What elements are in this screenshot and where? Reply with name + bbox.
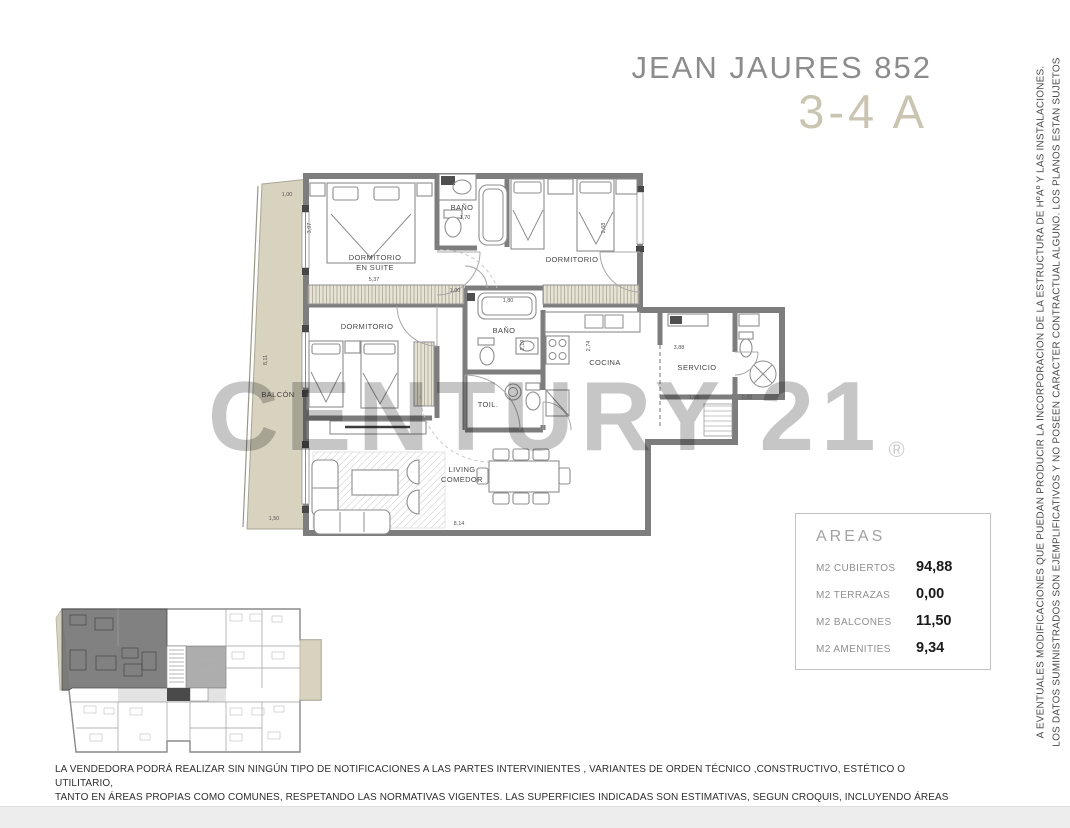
- svg-text:3,88: 3,88: [674, 345, 685, 351]
- room-label-dormitorio-3: DORMITORIO: [341, 322, 394, 331]
- areas-row-terrazas: M2 TERRAZAS 0,00: [816, 586, 990, 602]
- brochure-page: BALCÓN: [0, 0, 1070, 828]
- room-label-living-1: LIVING: [449, 465, 476, 474]
- svg-text:1,00: 1,00: [450, 288, 461, 294]
- areas-label: M2 CUBIERTOS: [816, 563, 916, 574]
- room-label-ensuite-2: EN SUITE: [356, 263, 394, 272]
- side-disclaimer-line2: A EVENTUALES MODIFICACIONES QUE PUEDAN P…: [1036, 66, 1047, 739]
- areas-panel: AREAS M2 CUBIERTOS 94,88 M2 TERRAZAS 0,0…: [795, 513, 991, 670]
- svg-text:1,00: 1,00: [282, 192, 293, 198]
- areas-row-amenities: M2 AMENITIES 9,34: [816, 640, 990, 656]
- areas-value: 94,88: [916, 559, 952, 575]
- areas-row-cubiertos: M2 CUBIERTOS 94,88: [816, 559, 990, 575]
- footer-disclaimer-line1: LA VENDEDORA PODRÁ REALIZAR SIN NINGÚN T…: [55, 763, 955, 791]
- areas-value: 9,34: [916, 640, 944, 656]
- room-label-cocina: COCINA: [589, 358, 621, 367]
- areas-value: 11,50: [916, 613, 952, 629]
- svg-text:1,70: 1,70: [460, 215, 471, 221]
- svg-text:5,37: 5,37: [369, 277, 380, 283]
- ensuite-bedroom-furniture: [310, 183, 432, 263]
- room-label-ensuite-1: DORMITORIO: [349, 253, 402, 262]
- svg-text:2,68: 2,68: [601, 223, 607, 234]
- areas-label: M2 TERRAZAS: [816, 590, 916, 601]
- areas-panel-title: AREAS: [816, 528, 990, 546]
- room-label-bano-1: BAÑO: [451, 203, 474, 212]
- svg-text:1,50: 1,50: [269, 516, 280, 522]
- svg-text:3,97: 3,97: [307, 223, 313, 234]
- page-title: JEAN JAURES 852: [632, 50, 933, 86]
- areas-value: 0,00: [916, 586, 944, 602]
- side-disclaimer-line1: LOS DATOS SUMINISTRADOS SON EJEMPLIFICAT…: [1052, 57, 1063, 746]
- areas-row-balcones: M2 BALCONES 11,50: [816, 613, 990, 629]
- room-label-servicio: SERVICIO: [678, 363, 717, 372]
- room-label-dormitorio-2: DORMITORIO: [546, 255, 599, 264]
- svg-text:0,88: 0,88: [742, 395, 753, 401]
- svg-text:1,80: 1,80: [503, 298, 514, 304]
- svg-text:8,14: 8,14: [454, 521, 465, 527]
- service-room-fixtures: [668, 314, 708, 326]
- areas-label: M2 BALCONES: [816, 617, 916, 628]
- svg-text:8,11: 8,11: [263, 355, 269, 365]
- areas-label: M2 AMENITIES: [816, 644, 916, 655]
- svg-text:1,85: 1,85: [689, 395, 700, 401]
- room-label-toilette: TOIL.: [478, 400, 499, 409]
- svg-text:2,74: 2,74: [586, 341, 592, 352]
- room-label-bano-2: BAÑO: [493, 326, 516, 335]
- unit-number: 3-4 A: [798, 84, 928, 139]
- svg-text:2,19: 2,19: [520, 340, 526, 351]
- page-bottom-band: [0, 806, 1070, 828]
- balcony-label: BALCÓN: [261, 390, 294, 399]
- balcony: BALCÓN: [243, 179, 309, 529]
- room-label-living-2: COMEDOR: [441, 475, 483, 484]
- key-plan: [56, 609, 321, 752]
